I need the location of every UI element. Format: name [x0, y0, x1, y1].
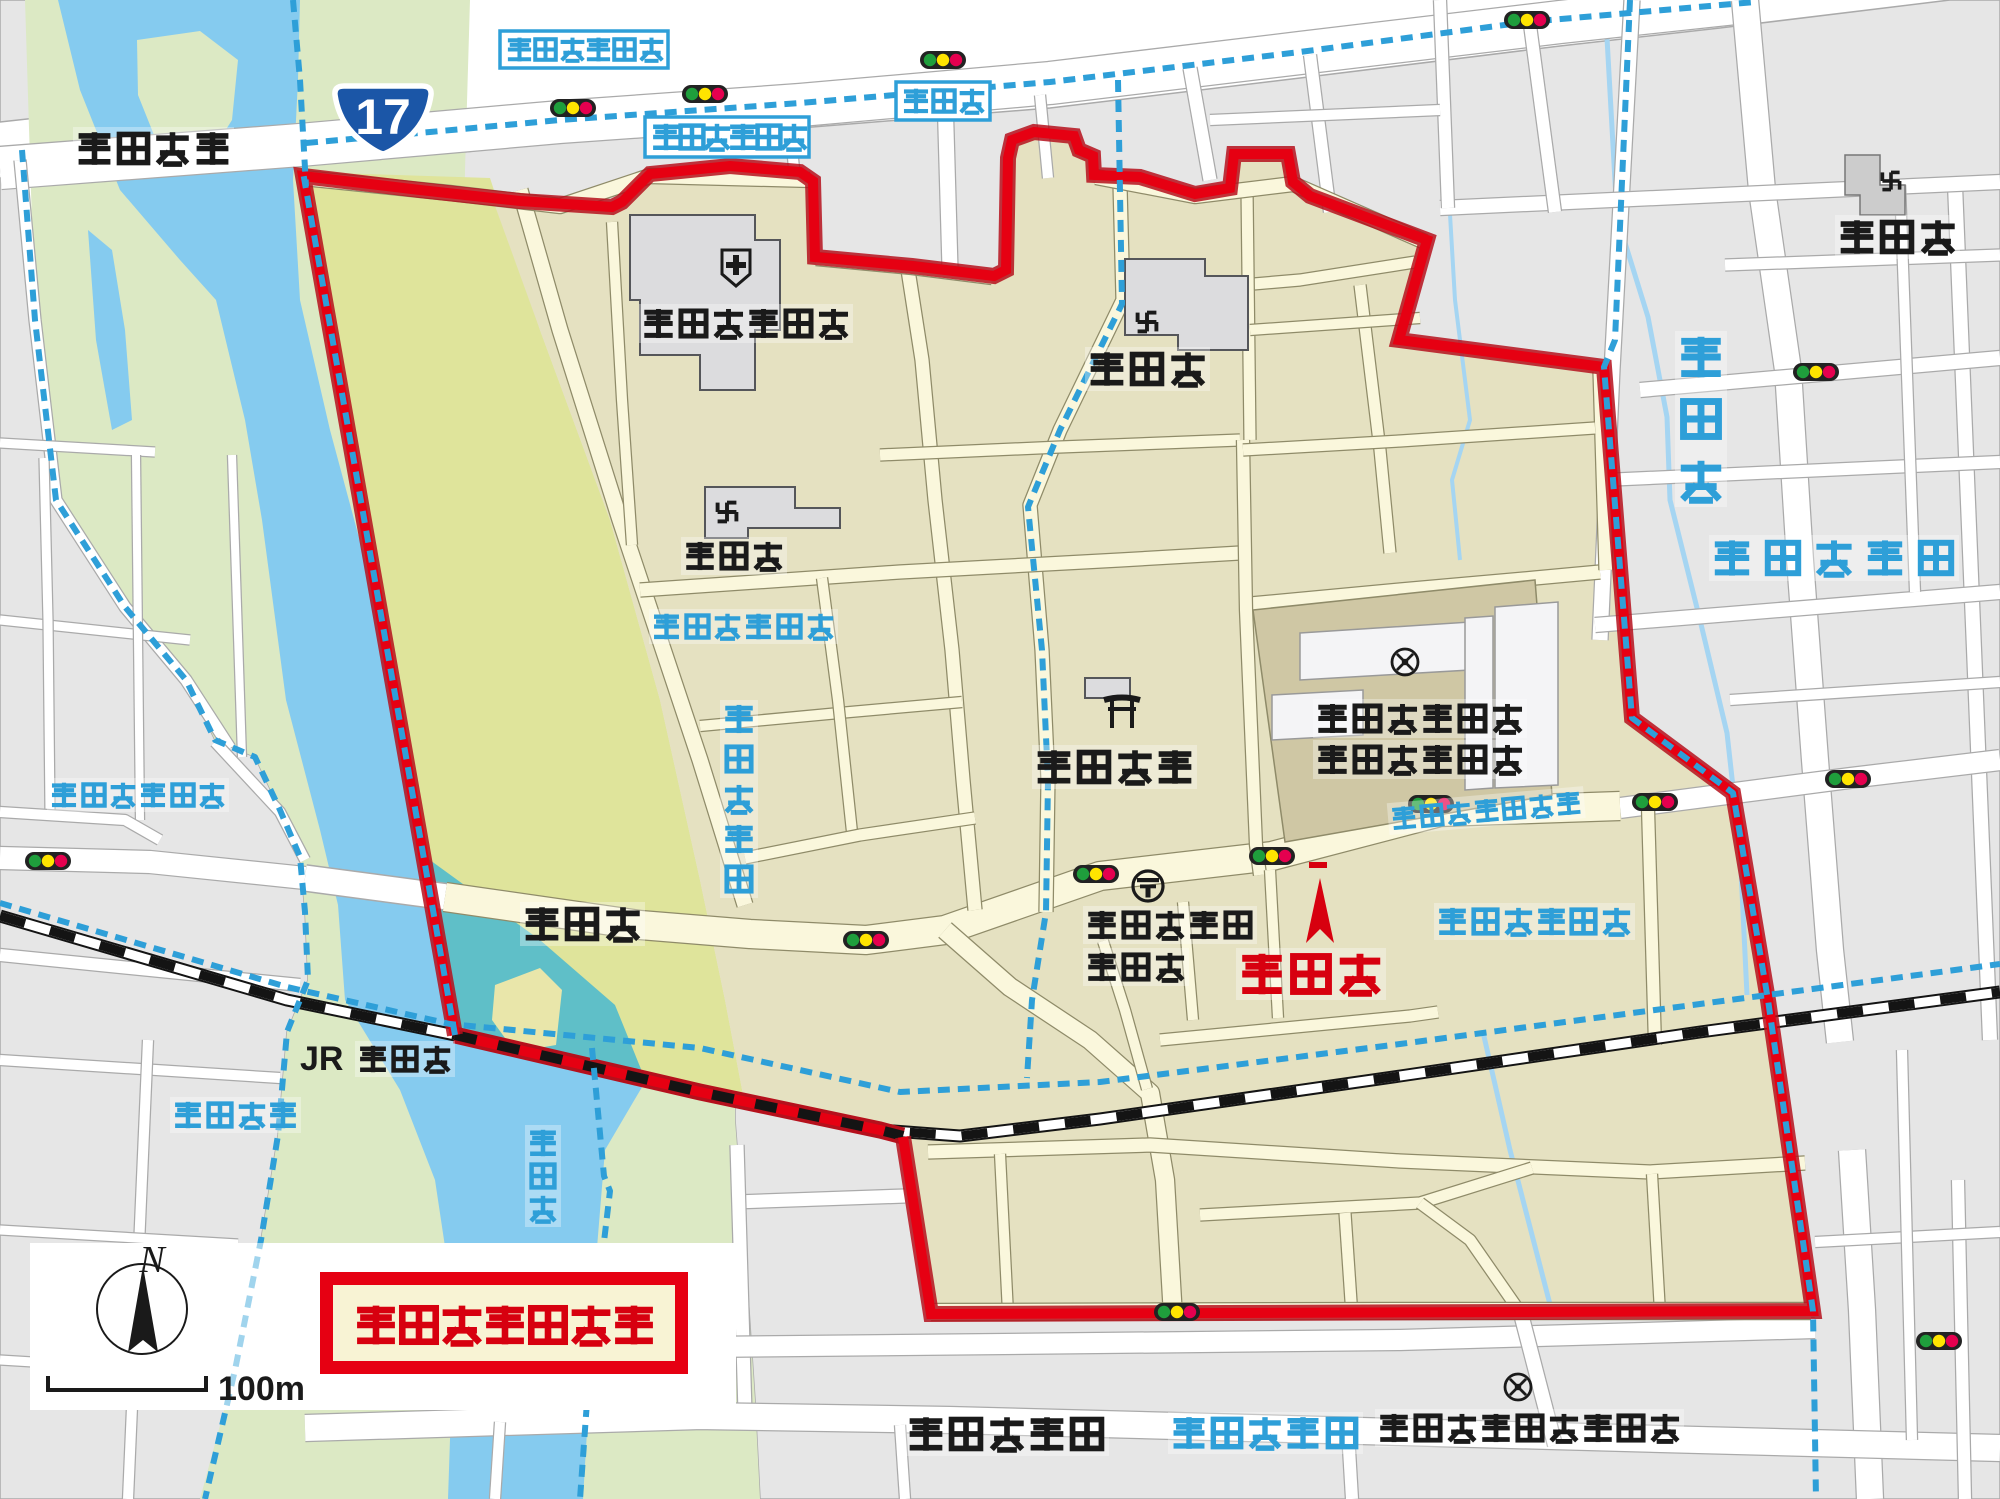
- svg-text:100m: 100m: [218, 1370, 305, 1408]
- svg-text:JR: JR: [300, 1040, 343, 1078]
- svg-text:N: N: [138, 1239, 167, 1281]
- svg-text:17: 17: [355, 89, 411, 145]
